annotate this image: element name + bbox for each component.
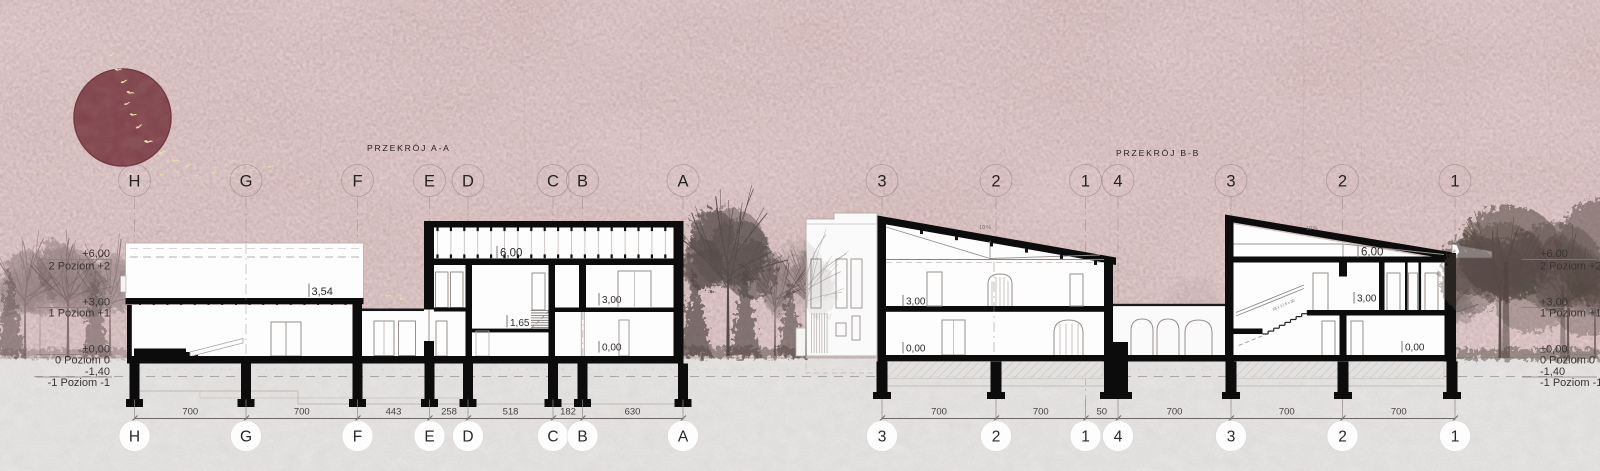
svg-text:443: 443 — [386, 407, 402, 418]
svg-text:258: 258 — [441, 407, 457, 418]
svg-text:700: 700 — [1279, 407, 1295, 418]
svg-text:PRZEKRÓJ A-A: PRZEKRÓJ A-A — [367, 143, 451, 153]
svg-text:-1 Poziom -1: -1 Poziom -1 — [1540, 377, 1600, 389]
svg-text:700: 700 — [931, 407, 947, 418]
svg-text:3,00: 3,00 — [906, 297, 926, 308]
svg-text:PRZEKRÓJ B-B: PRZEKRÓJ B-B — [1116, 148, 1200, 158]
svg-text:G: G — [240, 429, 252, 446]
svg-text:0 Poziom 0: 0 Poziom 0 — [55, 355, 110, 367]
svg-text:2 Poziom +2: 2 Poziom +2 — [1540, 261, 1600, 273]
svg-text:A: A — [678, 429, 689, 446]
svg-text:10 %: 10 % — [979, 225, 991, 231]
svg-text:B: B — [577, 173, 588, 191]
svg-text:6,00: 6,00 — [500, 248, 522, 260]
svg-text:2 Poziom +2: 2 Poziom +2 — [49, 261, 110, 273]
svg-text:50: 50 — [1097, 407, 1108, 418]
svg-text:700: 700 — [182, 407, 198, 418]
svg-text:3: 3 — [878, 429, 887, 446]
svg-text:4: 4 — [1113, 173, 1122, 191]
svg-text:3: 3 — [877, 173, 886, 191]
svg-text:2: 2 — [992, 429, 1001, 446]
svg-text:1: 1 — [1450, 173, 1459, 191]
svg-text:700: 700 — [1167, 407, 1183, 418]
svg-text:518: 518 — [503, 407, 519, 418]
svg-text:630: 630 — [625, 407, 641, 418]
svg-text:+6,00: +6,00 — [82, 248, 110, 260]
svg-text:1: 1 — [1451, 429, 1460, 446]
svg-text:-1 Poziom -1: -1 Poziom -1 — [48, 377, 110, 389]
svg-text:1: 1 — [1081, 173, 1090, 191]
svg-text:182: 182 — [560, 407, 576, 418]
svg-text:0,00: 0,00 — [602, 343, 622, 354]
svg-text:C: C — [547, 173, 559, 191]
svg-text:3,00: 3,00 — [602, 295, 622, 306]
svg-text:1: 1 — [1081, 429, 1090, 446]
svg-text:E: E — [424, 429, 434, 446]
svg-text:10 %: 10 % — [1306, 226, 1318, 232]
svg-text:0 Poziom 0: 0 Poziom 0 — [1540, 355, 1595, 367]
svg-text:700: 700 — [294, 407, 310, 418]
svg-text:A: A — [677, 173, 688, 191]
svg-text:0,00: 0,00 — [906, 344, 926, 355]
svg-text:+6,00: +6,00 — [1540, 248, 1568, 260]
svg-text:1 Poziom +1: 1 Poziom +1 — [49, 308, 110, 320]
svg-text:1,65: 1,65 — [510, 318, 530, 329]
svg-text:E: E — [424, 173, 435, 191]
svg-text:2: 2 — [1338, 173, 1347, 191]
svg-text:H: H — [129, 429, 140, 446]
svg-text:3,54: 3,54 — [312, 286, 333, 298]
svg-text:C: C — [547, 429, 558, 446]
svg-text:D: D — [462, 173, 474, 191]
svg-text:3: 3 — [1227, 429, 1236, 446]
svg-text:6,00: 6,00 — [1361, 247, 1383, 259]
svg-text:0,00: 0,00 — [1405, 343, 1425, 354]
svg-text:D: D — [462, 429, 473, 446]
svg-text:2: 2 — [991, 173, 1000, 191]
svg-text:H: H — [129, 173, 141, 191]
svg-text:2: 2 — [1338, 429, 1347, 446]
svg-text:700: 700 — [1391, 407, 1407, 418]
svg-text:3: 3 — [1226, 173, 1235, 191]
svg-text:3,00: 3,00 — [1357, 294, 1377, 305]
svg-text:G: G — [240, 173, 253, 191]
svg-text:1 Poziom +1: 1 Poziom +1 — [1540, 308, 1600, 320]
svg-text:F: F — [353, 429, 362, 446]
svg-text:F: F — [352, 173, 362, 191]
svg-text:B: B — [577, 429, 587, 446]
svg-text:700: 700 — [1033, 407, 1049, 418]
svg-text:4: 4 — [1114, 429, 1123, 446]
